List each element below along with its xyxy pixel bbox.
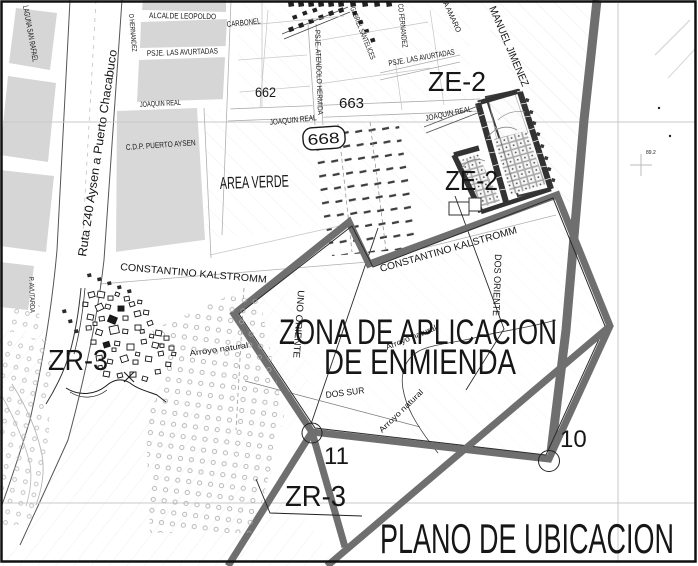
svg-text:P. AVUTARDA: P. AVUTARDA: [27, 277, 35, 313]
svg-text:AREA VERDE: AREA VERDE: [219, 172, 289, 193]
svg-text:ALCALDE LEOPOLDO: ALCALDE LEOPOLDO: [149, 11, 216, 21]
svg-text:DE ENMIENDA: DE ENMIENDA: [324, 343, 517, 382]
svg-text:668: 668: [307, 130, 340, 149]
svg-text:ZE-2: ZE-2: [445, 165, 498, 196]
svg-text:89.2: 89.2: [646, 150, 656, 156]
svg-text:ZR-3: ZR-3: [285, 481, 346, 513]
svg-text:662: 662: [255, 84, 276, 100]
svg-text:DOS ORIENTE: DOS ORIENTE: [490, 254, 503, 316]
svg-text:11: 11: [324, 443, 349, 470]
svg-text:10: 10: [560, 426, 587, 453]
svg-text:ZR-3: ZR-3: [48, 345, 108, 377]
svg-text:ZE-2: ZE-2: [428, 66, 486, 97]
svg-text:663: 663: [339, 95, 364, 112]
svg-text:PLANO DE UBICACION: PLANO DE UBICACION: [380, 515, 674, 562]
